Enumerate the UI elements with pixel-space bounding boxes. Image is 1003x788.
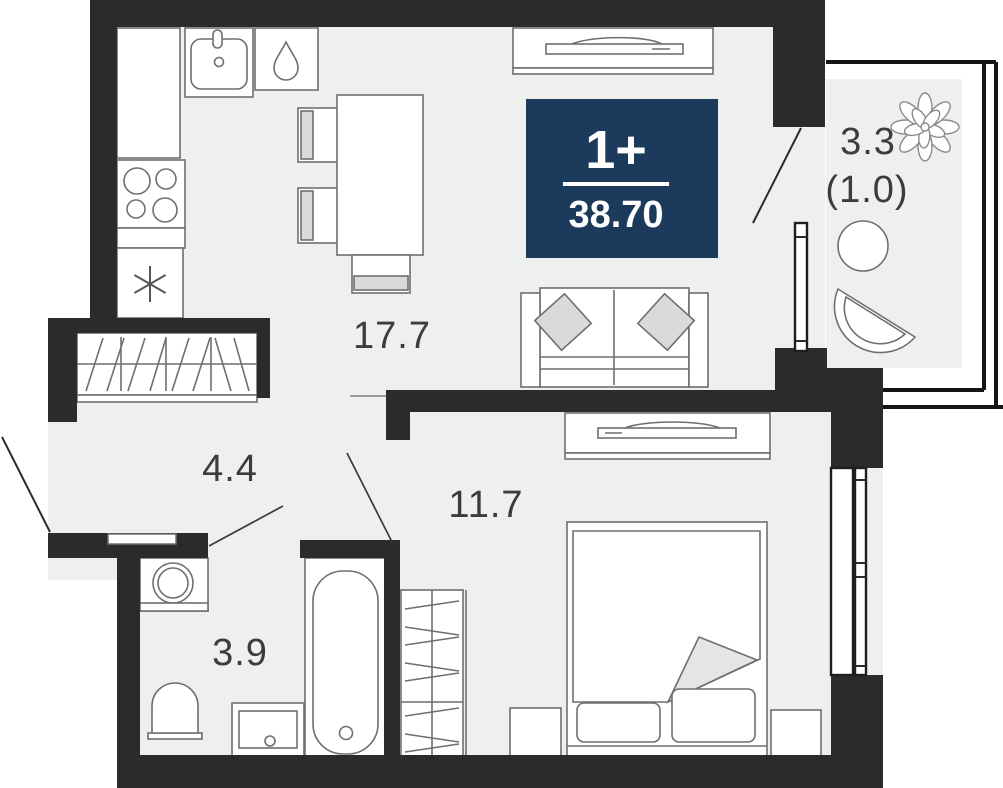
stove-icon	[117, 160, 185, 228]
pillow	[577, 703, 660, 742]
room-label-living: 17.7	[353, 315, 431, 357]
tall-cabinet	[117, 28, 180, 158]
nightstand	[510, 708, 561, 758]
tv-stand-bedroom	[565, 413, 770, 459]
chair	[298, 188, 338, 243]
sofa	[521, 288, 708, 387]
pillow	[672, 689, 755, 742]
vanity-sink-icon	[232, 703, 304, 760]
badge-area-value: 38.70	[568, 194, 663, 236]
balcony-table	[838, 221, 888, 271]
fridge-icon	[117, 248, 183, 318]
room-label-balcony-reduced: (1.0)	[825, 169, 908, 211]
chair	[352, 255, 410, 293]
entry-threshold	[108, 534, 176, 544]
kitchen-counter-gap	[117, 228, 185, 248]
bed	[567, 522, 767, 757]
plant-icon	[891, 93, 959, 161]
radiator	[831, 468, 853, 675]
kitchen-sink-icon	[185, 28, 253, 97]
floor-plan-svg: 17.7 4.4 11.7 3.9 3.3 (1.0) 1+ 38.70	[0, 0, 1003, 788]
room-label-bathroom: 3.9	[212, 632, 268, 674]
room-label-bedroom: 11.7	[448, 484, 523, 526]
tv-stand-living	[513, 28, 713, 74]
nightstand	[771, 710, 821, 756]
room-label-balcony: 3.3	[840, 121, 896, 163]
washing-machine-icon	[140, 558, 208, 611]
bathtub-icon	[305, 558, 386, 760]
room-label-hallway: 4.4	[202, 448, 258, 490]
dishwasher-icon	[255, 28, 318, 90]
area-badge: 1+ 38.70	[526, 99, 718, 258]
badge-rooms-label: 1+	[585, 120, 647, 180]
chair	[298, 108, 338, 162]
floor-plan-page: 17.7 4.4 11.7 3.9 3.3 (1.0) 1+ 38.70	[0, 0, 1003, 788]
wardrobe-bedroom	[401, 590, 466, 760]
entrance-door-leaf	[2, 437, 50, 532]
dining-table	[337, 95, 423, 255]
bedroom-window	[831, 468, 866, 675]
wardrobe-hall	[77, 333, 257, 402]
